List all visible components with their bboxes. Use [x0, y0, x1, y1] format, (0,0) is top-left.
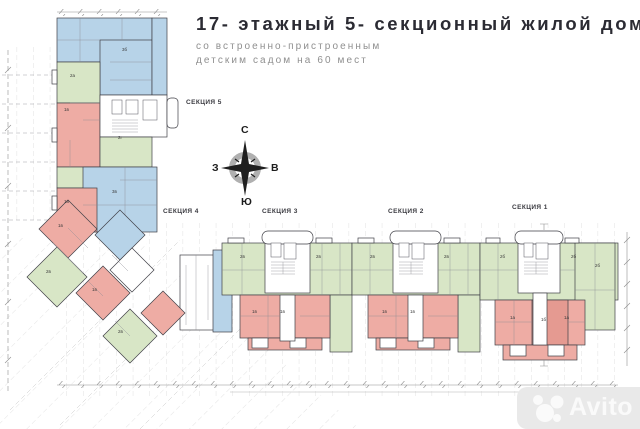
title-line2: со встроенно-пристроенным: [196, 41, 640, 52]
apartment-type-label: 2в: [118, 330, 123, 335]
section-label-2: СЕКЦИЯ 2: [388, 208, 424, 215]
drawing-title: 17- этажный 5- секционный жилой дом со в…: [196, 13, 640, 66]
apartment-type-label: 2в: [316, 255, 321, 260]
compass-west-label: З: [212, 162, 219, 174]
apartment-type-label: 1в: [410, 310, 415, 315]
compass-rose: С Ю З В: [212, 124, 278, 208]
apartment-type-label: 1б: [541, 318, 546, 323]
floorplan-page: { "title": { "line1": "17- этажный 5- се…: [0, 0, 640, 429]
compass-north-label: С: [241, 124, 249, 136]
section-3-plan: [222, 231, 352, 352]
apartment-type-label: 2а: [70, 74, 75, 79]
apartment-type-label: 2в: [444, 255, 449, 260]
apartment-type-label: 1в: [58, 224, 63, 229]
apartment-type-label: 2в: [46, 270, 51, 275]
apartment-type-label: 2г: [118, 136, 122, 141]
section-label-3: СЕКЦИЯ 3: [262, 208, 298, 215]
apartment-type-label: 3в: [112, 190, 117, 195]
section-label-4: СЕКЦИЯ 4: [163, 208, 199, 215]
title-line3: детским садом на 60 мест: [196, 55, 640, 66]
section-label-5: СЕКЦИЯ 5: [186, 99, 222, 106]
section-label-1: СЕКЦИЯ 1: [512, 204, 548, 211]
title-line1: 17- этажный 5- секционный жилой дом: [196, 13, 640, 35]
apartment-type-label: 2б: [595, 264, 600, 269]
apartment-type-label: 1а: [564, 316, 569, 321]
apartment-type-label: 1в: [382, 310, 387, 315]
apartment-type-label: 1а: [510, 316, 515, 321]
apartment-type-label: 1в: [92, 288, 97, 293]
compass-east-label: В: [271, 162, 279, 174]
apartment-type-label: 1в: [64, 200, 69, 205]
apartment-type-label: 1в: [64, 108, 69, 113]
apartment-type-label: 2в: [370, 255, 375, 260]
avito-watermark-text: Avito: [569, 393, 633, 422]
apartment-type-label: 1в: [280, 310, 285, 315]
apartment-type-label: 2б: [500, 255, 505, 260]
apartment-type-label: 3б: [122, 48, 127, 53]
apartment-type-label: 2б: [571, 255, 576, 260]
compass-south-label: Ю: [241, 196, 252, 208]
section-2-plan: [352, 231, 480, 352]
avito-logo-icon: [529, 392, 569, 426]
section-5-plan: [52, 18, 178, 232]
apartment-type-label: 1в: [252, 310, 257, 315]
apartment-type-label: 2в: [240, 255, 245, 260]
avito-watermark: Avito: [517, 387, 640, 429]
